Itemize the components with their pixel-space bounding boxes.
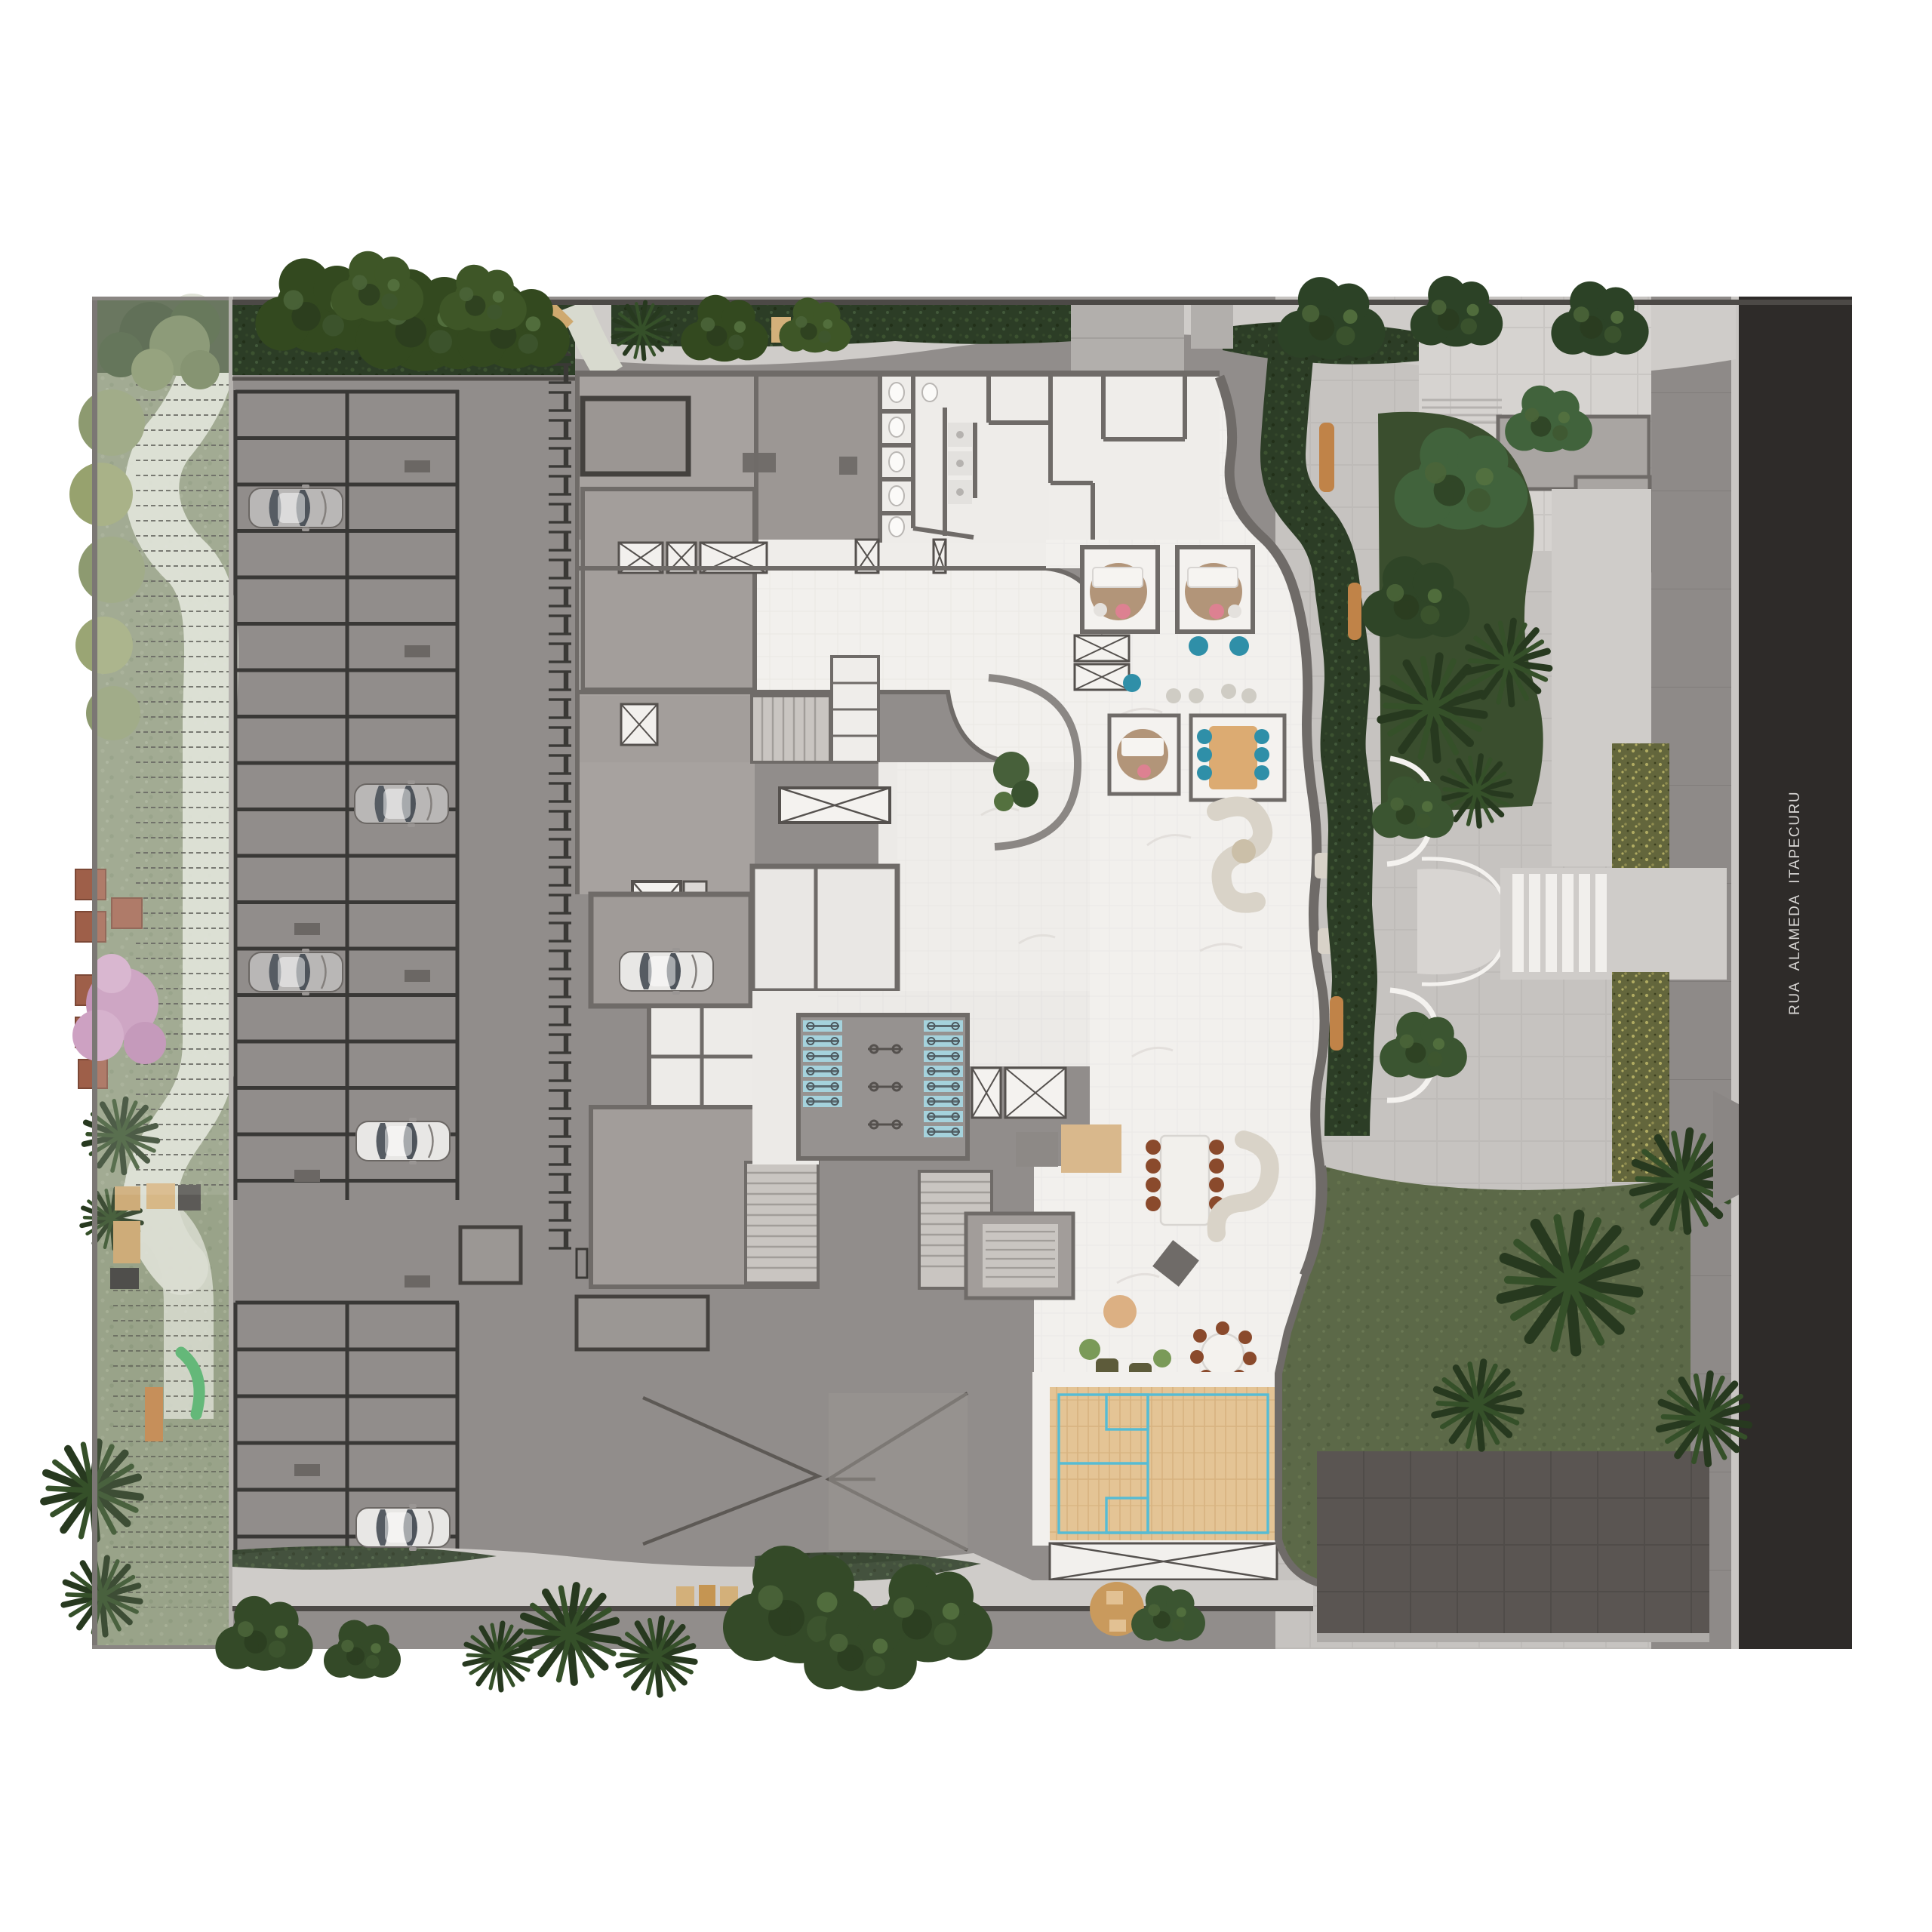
svg-text:RUA ALAMEDA ITAPECURU: RUA ALAMEDA ITAPECURU [1787, 791, 1803, 1015]
